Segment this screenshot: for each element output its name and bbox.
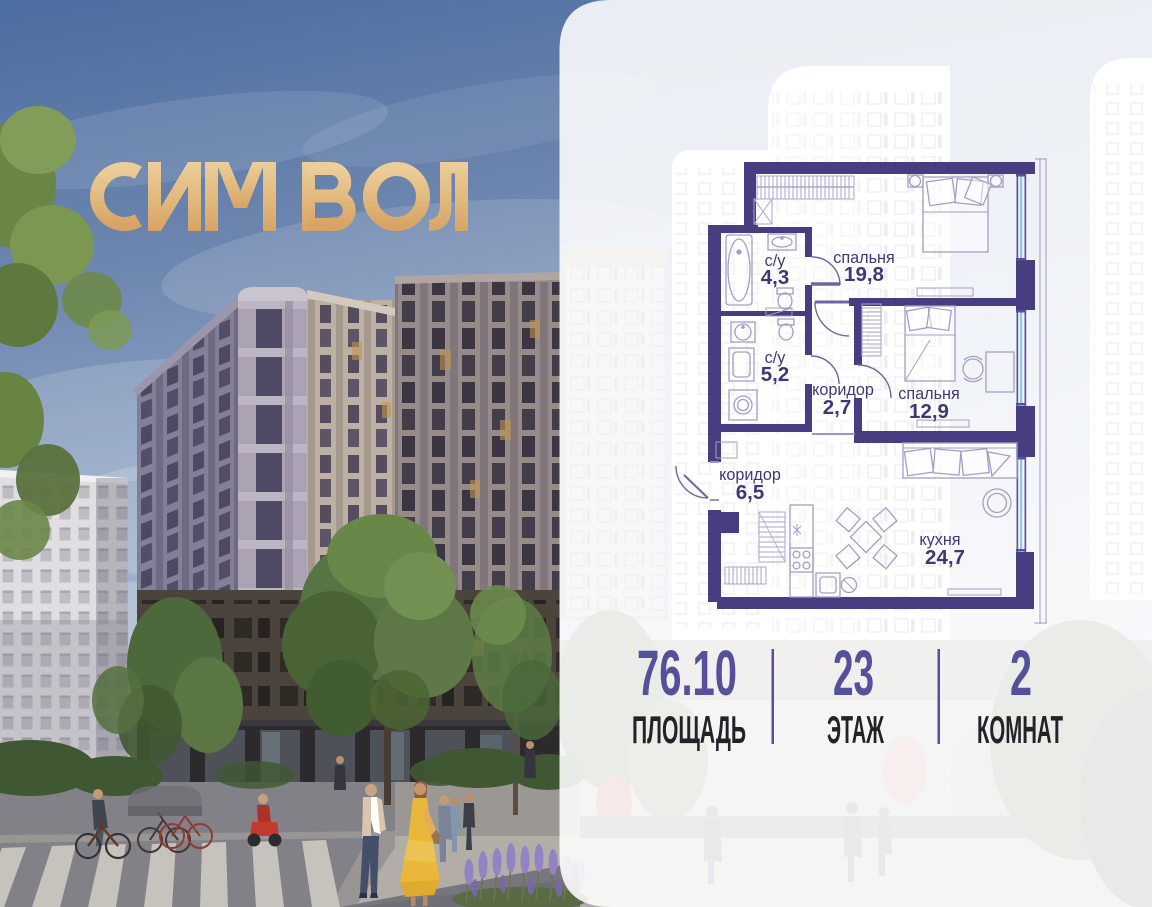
svg-text:2: 2 — [1010, 637, 1032, 709]
svg-text:6,5: 6,5 — [736, 481, 765, 504]
svg-text:19,8: 19,8 — [844, 263, 884, 286]
svg-text:24,7: 24,7 — [925, 546, 965, 569]
svg-text:ЭТАЖ: ЭТАЖ — [827, 709, 884, 752]
svg-text:2,7: 2,7 — [823, 396, 852, 419]
svg-text:12,9: 12,9 — [909, 400, 949, 423]
svg-text:КОМНАТ: КОМНАТ — [977, 709, 1063, 752]
svg-text:5,2: 5,2 — [761, 363, 790, 386]
svg-text:76.10: 76.10 — [637, 637, 737, 709]
svg-text:4,3: 4,3 — [761, 266, 790, 289]
svg-text:23: 23 — [833, 637, 874, 709]
svg-text:ПЛОЩАДЬ: ПЛОЩАДЬ — [632, 709, 746, 752]
